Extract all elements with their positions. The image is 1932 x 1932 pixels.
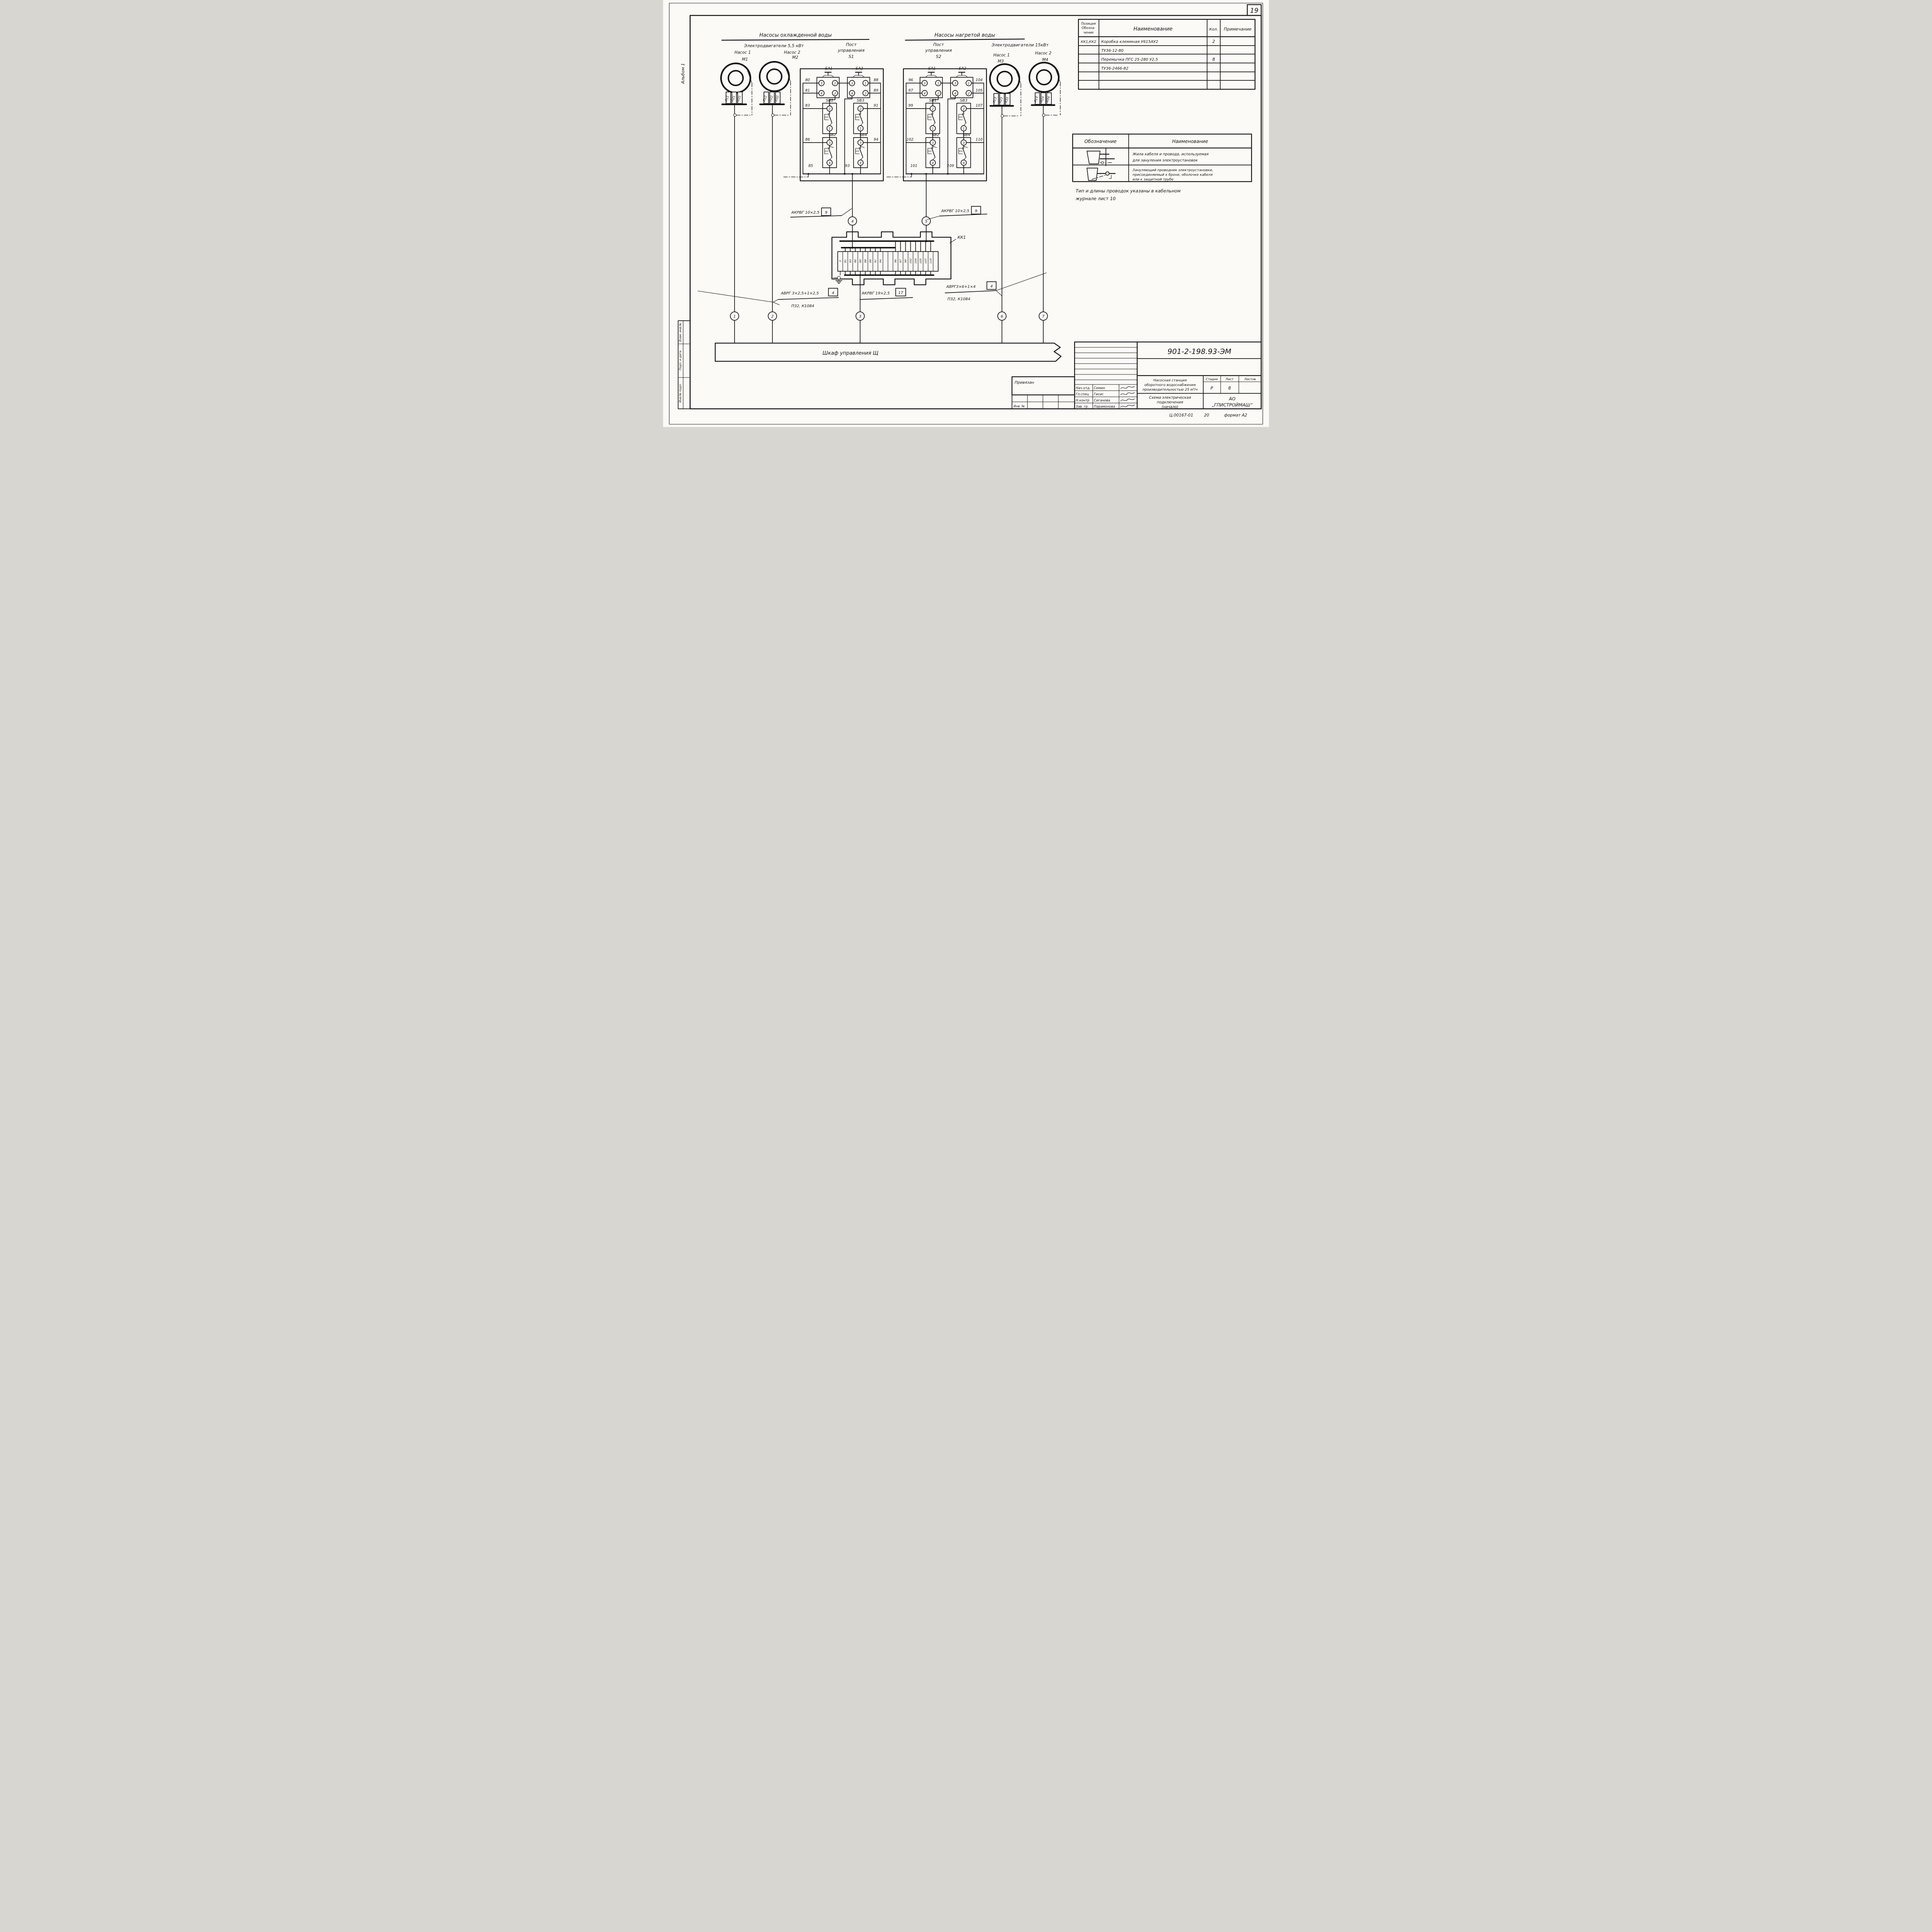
contact-number: 4 bbox=[963, 162, 964, 165]
legend-row2-line2: присоединяемый к броне, оболочке кабеля bbox=[1133, 173, 1213, 177]
cable-label-akrvg10-right: АКРВГ 10×2,5 bbox=[941, 209, 969, 213]
title-block: 901-2-198.93-ЭМ Нач.отд. Семин Гл.спец Г… bbox=[1012, 342, 1261, 409]
parts-header-note: Примечание bbox=[1224, 27, 1252, 32]
terminal-box-kk1: 3 81 83 86 80 88 89 91 94 96 97 99 102 1… bbox=[832, 225, 966, 343]
cable-ref: 9 bbox=[825, 211, 827, 215]
contact-number: 1 bbox=[828, 127, 830, 131]
staff-role: Нач.отд. bbox=[1076, 386, 1090, 390]
parts-header-position-2: Обозна- bbox=[1082, 26, 1095, 30]
terminal-number: 83 bbox=[849, 259, 852, 263]
cable-core-grounding-symbol bbox=[1087, 148, 1114, 166]
terminal-number: 96 bbox=[894, 259, 897, 263]
cable-circle-5: 5 bbox=[925, 219, 927, 224]
contact-number: 1 bbox=[937, 82, 939, 85]
post-s2-label-1: Пост bbox=[933, 42, 944, 47]
cable-label-akrvg10-left: АКРВГ 10×2,5 bbox=[791, 211, 820, 215]
contact-number: 4 bbox=[923, 92, 925, 95]
left-motors-label: Электродвигатели 5,5 кВт bbox=[744, 43, 804, 48]
contact-number: 3 bbox=[923, 82, 925, 85]
contact-number: 3 bbox=[963, 141, 964, 145]
terminal-number: 104 bbox=[914, 259, 917, 264]
wire-number: 104 bbox=[976, 78, 983, 82]
drawing-sheet: 19 Альбом 1 Взам. инв.№ Подп. и дата Инв… bbox=[663, 0, 1269, 427]
terminal-number: 105 bbox=[919, 258, 922, 264]
parts-row-name: ТУ36-12-80 bbox=[1101, 49, 1124, 53]
cable-route: П32, К1084 bbox=[791, 304, 814, 308]
stamp-vzam-inv: Взам. инв.№ bbox=[679, 323, 682, 342]
grounding-conductor-symbol bbox=[1087, 168, 1115, 180]
parts-header-position-3: чение bbox=[1083, 31, 1094, 35]
contact-number: 3 bbox=[828, 141, 830, 145]
contact-number: 2 bbox=[932, 107, 934, 111]
sheet-title-line2: подключения bbox=[1157, 400, 1183, 405]
legend-header-name: Наименование bbox=[1172, 139, 1208, 144]
parts-header-name: Наименование bbox=[1133, 26, 1172, 32]
contact-number: 4 bbox=[828, 162, 830, 165]
wire-number: 96 bbox=[908, 78, 913, 82]
ground-bond-circle bbox=[1043, 114, 1045, 117]
contact-number: 4 bbox=[859, 162, 861, 165]
motor-m3: Л13 Л23 Л33 bbox=[990, 64, 1021, 343]
wire-number: 94 bbox=[874, 138, 878, 142]
wire-number: 88 bbox=[874, 78, 878, 82]
parts-header-qty: Кол. bbox=[1209, 27, 1218, 32]
pump1-label: Насос 1 bbox=[993, 53, 1010, 58]
terminal-number: 110 bbox=[929, 258, 932, 264]
terminal-number: 97 bbox=[899, 259, 902, 263]
cable-label-avrg25: АВРГ 3×2,5+1×2,5 bbox=[781, 291, 819, 296]
contact-number: 3 bbox=[820, 82, 822, 85]
switch-tag: SA2 bbox=[959, 66, 966, 71]
cable-circle-3: 3 bbox=[859, 315, 861, 319]
terminal-number: 91 bbox=[874, 259, 877, 263]
binding-label: Привязан bbox=[1015, 381, 1034, 385]
footer-format: формат А2 bbox=[1224, 413, 1247, 418]
parts-row-qty: 2 bbox=[1213, 39, 1215, 44]
project-line2: оборотного водоснабжения bbox=[1145, 383, 1196, 387]
staff-role: Зав. гр. bbox=[1076, 405, 1089, 409]
legend-row2-line1: Зануляющий проводник электроустановки, bbox=[1133, 168, 1213, 172]
signature bbox=[1121, 393, 1134, 395]
contact-number: 1 bbox=[963, 127, 964, 131]
wire-number: 81 bbox=[805, 88, 810, 93]
post-s1-label-1: Пост bbox=[846, 42, 857, 47]
wire-number: 102 bbox=[906, 138, 913, 142]
cable-ref: 4 bbox=[990, 284, 993, 289]
contact-number: 3 bbox=[851, 82, 853, 85]
pump1-label: Насос 1 bbox=[735, 50, 751, 55]
inventory-label: Инв. № bbox=[1014, 405, 1025, 408]
cable-route: П32, К1084 bbox=[947, 297, 970, 301]
control-cabinet: Шкаф управления Щ bbox=[715, 343, 1061, 361]
signature bbox=[1121, 386, 1134, 389]
terminal-number: 86 bbox=[854, 259, 857, 263]
terminal-number: 3 bbox=[839, 260, 842, 262]
contact-number: 1 bbox=[968, 82, 969, 85]
cabinet-label: Шкаф управления Щ bbox=[823, 350, 878, 356]
contact-number: 2 bbox=[864, 92, 866, 95]
staff-name: Сиганова bbox=[1094, 399, 1110, 403]
left-group-header: Насосы охлажденной воды Электродвигатели… bbox=[722, 32, 869, 62]
post-s1: 3 1 4 2 3 1 4 2 2 1 2 1 3 4 3 bbox=[784, 66, 883, 217]
contact-number: 3 bbox=[859, 141, 861, 145]
right-motors-label: Электродвигатели 15кВт bbox=[991, 43, 1049, 48]
cable-circle-7: 7 bbox=[1042, 315, 1045, 319]
motor-m4: Л14 Л24 Л34 bbox=[1029, 63, 1060, 343]
sheet-value: 8 bbox=[1228, 386, 1231, 391]
staff-name: Семин bbox=[1094, 386, 1105, 390]
stamp-inv-podl: Инв.№ подл. bbox=[679, 383, 682, 402]
cable-label-avrg64: АВРГ3×6+1×4 bbox=[946, 285, 976, 289]
signature bbox=[1121, 399, 1134, 401]
signature bbox=[1121, 405, 1134, 407]
parts-table: Позиция Обозна- чение Наименование Кол. … bbox=[1078, 19, 1255, 89]
legend-row2-line3: или к защитной трубе bbox=[1133, 178, 1173, 182]
button-tag: SB4 bbox=[963, 133, 970, 137]
designation-circles: 1 2 3 4 5 6 7 bbox=[730, 217, 1048, 320]
terminal-number: 80 bbox=[859, 259, 862, 263]
wire-number: 93 bbox=[845, 164, 850, 168]
sheet-footer: Ц.00167-01 20 формат А2 bbox=[1169, 413, 1247, 418]
button-tag: SB1 bbox=[826, 99, 833, 103]
margin-stamps: Альбом 1 Взам. инв.№ Подп. и дата Инв.№ … bbox=[678, 63, 690, 409]
wire-number: 109 bbox=[947, 164, 954, 168]
staff-role: Н.контр bbox=[1076, 399, 1089, 403]
button-tag: SB4 bbox=[859, 133, 867, 137]
cable-ref: 4 bbox=[832, 291, 834, 295]
contact-number: 1 bbox=[864, 82, 866, 85]
cable-circle-4: 4 bbox=[851, 219, 854, 224]
terminal-number: 81 bbox=[844, 259, 847, 263]
project-line3: производительностью 25 м³/ч bbox=[1143, 388, 1198, 392]
legend-header-symbol: Обозначение bbox=[1084, 139, 1116, 144]
motor-m3-tag: М3 bbox=[998, 59, 1004, 64]
sheet-corner-number: 19 bbox=[1250, 7, 1259, 15]
wire-number: 89 bbox=[874, 88, 878, 93]
pump2-label: Насос 2 bbox=[1035, 51, 1052, 56]
sheet-title-line1: Схема электрическая bbox=[1149, 396, 1191, 400]
wire-number: 99 bbox=[908, 104, 913, 108]
button-tag: SB3 bbox=[857, 99, 864, 103]
contact-number: 2 bbox=[834, 92, 836, 95]
wire-number: 83 bbox=[805, 104, 810, 108]
button-tag: SB1 bbox=[929, 99, 937, 103]
parts-row-pos: КК1,КК2 bbox=[1081, 40, 1096, 44]
switch-tag: SA1 bbox=[825, 66, 833, 71]
pump2-label: Насос 2 bbox=[784, 50, 801, 55]
left-group-title: Насосы охлажденной воды bbox=[759, 32, 832, 38]
parts-row-name: Перемычка ПГС 25-280 У2,5 bbox=[1101, 58, 1158, 62]
cable-circle-6: 6 bbox=[1001, 315, 1003, 319]
album-label: Альбом 1 bbox=[680, 63, 685, 84]
post-s2-tag: S2 bbox=[936, 54, 941, 59]
wire-number: 110 bbox=[976, 138, 983, 142]
sheets-label: Листов bbox=[1244, 378, 1256, 381]
staff-role: Гл.спец bbox=[1076, 393, 1089, 396]
parts-row-name: Коробка клеммная У615АУ2 bbox=[1101, 39, 1158, 44]
post-s2: 3 1 4 2 3 1 4 2 2 1 2 1 3 4 3 bbox=[887, 66, 986, 217]
cable-ref: 17 bbox=[898, 291, 903, 295]
company-line2: „ГПИСТРОЙМАШ“ bbox=[1212, 402, 1252, 408]
contact-number: 1 bbox=[834, 82, 836, 85]
button-tag: SB3 bbox=[960, 99, 968, 103]
cable-circle-1: 1 bbox=[733, 315, 736, 319]
cable-circle-2: 2 bbox=[771, 315, 774, 319]
sheet-title-line3: (начало) bbox=[1162, 405, 1179, 409]
terminal-number: 107 bbox=[924, 258, 927, 264]
switch-tag: SA1 bbox=[928, 66, 936, 71]
terminal-number: 89 bbox=[869, 259, 872, 263]
contact-number: 4 bbox=[932, 162, 934, 165]
contact-number: 2 bbox=[963, 107, 964, 111]
legend-row1-line1: Жила кабеля и провода, используемая bbox=[1132, 152, 1209, 156]
terminal-box-tag: КК1 bbox=[957, 235, 966, 240]
contact-number: 4 bbox=[820, 92, 822, 95]
contact-number: 2 bbox=[859, 107, 861, 111]
right-group-title: Насосы нагретой воды bbox=[935, 32, 995, 38]
wire-number: 91 bbox=[874, 104, 878, 108]
staff-name: Гисис bbox=[1094, 393, 1104, 396]
contact-number: 4 bbox=[954, 92, 956, 95]
cable-label-akrvg19: АКРВГ 19×2,5 bbox=[861, 291, 890, 296]
wire-number: 85 bbox=[808, 164, 813, 168]
wire-number: 86 bbox=[805, 138, 810, 142]
footer-code: Ц.00167-01 bbox=[1169, 413, 1193, 418]
motor-m4-tag: М4 bbox=[1042, 58, 1048, 62]
wire-number: 101 bbox=[910, 164, 917, 168]
ground-bond-circle bbox=[734, 114, 736, 117]
sheet-label: Лист bbox=[1225, 378, 1234, 381]
wire-number: 105 bbox=[976, 88, 983, 93]
motor-m2-tag: М2 bbox=[792, 55, 798, 60]
switch-tag: SA2 bbox=[855, 66, 863, 71]
parts-header-position-1: Позиция bbox=[1081, 22, 1096, 26]
ground-bond-circle bbox=[772, 114, 774, 117]
contact-number: 2 bbox=[968, 92, 969, 95]
ground-bond-circle bbox=[1001, 115, 1004, 117]
terminal-number: 94 bbox=[879, 259, 882, 263]
stage-label: Стадия bbox=[1206, 378, 1218, 381]
contact-number: 2 bbox=[828, 107, 830, 111]
right-group-header: Насосы нагретой воды Пост управления S2 … bbox=[905, 32, 1051, 64]
legend-row1-line2: для зануления электроустановок bbox=[1132, 158, 1198, 163]
footer-number: 20 bbox=[1204, 413, 1209, 418]
terminal-number: 88 bbox=[864, 259, 867, 263]
parts-row-name: ТУ36-2466-82 bbox=[1101, 66, 1128, 71]
contact-number: 4 bbox=[851, 92, 853, 95]
cable-labels: АКРВГ 10×2,5 9 АКРВГ 10×2,5 9 АВРГ 3×2,5… bbox=[698, 206, 1046, 308]
project-line1: Насосная станция bbox=[1153, 379, 1187, 383]
wire-number: 80 bbox=[805, 78, 810, 82]
motor-m1-tag: М1 bbox=[742, 57, 748, 62]
note-line1: Тип и длины проводок указаны в кабельном bbox=[1076, 188, 1181, 194]
contact-number: 3 bbox=[932, 141, 934, 145]
contact-number: 2 bbox=[937, 92, 939, 95]
post-s2-label-2: управления bbox=[925, 48, 952, 53]
contact-number: 1 bbox=[859, 127, 861, 131]
wire-number: 97 bbox=[908, 88, 913, 93]
terminal-number: 99 bbox=[904, 259, 907, 263]
company-line1: АО bbox=[1229, 396, 1236, 401]
cable-ref: 9 bbox=[975, 209, 977, 213]
wire-number: 107 bbox=[976, 104, 983, 108]
note-text: Тип и длины проводок указаны в кабельном… bbox=[1075, 188, 1181, 201]
legend-table: Обозначение Наименование Жила кабеля и п… bbox=[1073, 134, 1252, 182]
contact-number: 1 bbox=[932, 127, 934, 131]
terminal-number: 102 bbox=[909, 258, 912, 264]
button-tag: SB2 bbox=[828, 133, 836, 137]
contact-number: 3 bbox=[954, 82, 956, 85]
button-tag: SB2 bbox=[932, 133, 939, 137]
parts-row-qty: 8 bbox=[1213, 57, 1215, 62]
stamp-podp-data: Подп. и дата bbox=[679, 350, 682, 370]
ground-clamp-circle bbox=[837, 276, 840, 279]
stage-value: Р bbox=[1211, 386, 1213, 391]
post-s1-tag: S1 bbox=[849, 54, 854, 59]
document-number: 901-2-198.93-ЭМ bbox=[1167, 347, 1231, 356]
staff-name: Парамонова bbox=[1094, 405, 1115, 409]
note-line2: журнале лист 10 bbox=[1075, 196, 1116, 201]
motor-m1: Л11 Л21 Л31 bbox=[721, 63, 752, 343]
post-s1-label-2: управления bbox=[838, 48, 865, 53]
